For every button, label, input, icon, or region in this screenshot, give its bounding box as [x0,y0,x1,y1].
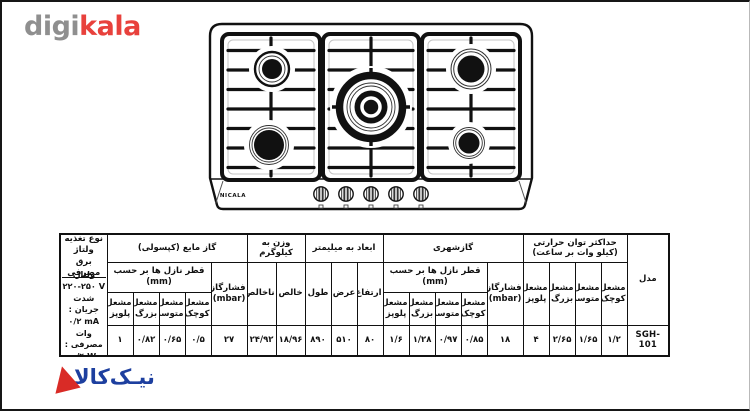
city-gas-burner-small-header: مشعلکوچک [461,292,487,325]
max-power-small-value: ۱/۲ [601,325,627,356]
lpg-nozzle-wok-value: ۱ [107,325,133,356]
weight-net-value: ۱۸/۹۶ [276,325,305,356]
city-gas-nozzle-header: قطر نازل ها بر حسب (mm) [383,262,487,292]
weight-gross-header: ناخالص [247,262,276,325]
burner-center-wok [330,66,412,148]
city-gas-nozzle-medium-value: ۰/۹۷ [435,325,461,356]
weight-group-header: وزن به کیلوگرم [247,234,305,262]
digikala-logo: digikala [24,13,141,40]
max-power-burner-large-header: مشعلبزرگ [549,262,575,325]
dimension-width-value: ۵۱۰ [331,325,357,356]
lpg-burner-large-header: مشعلبزرگ [133,292,159,325]
lpg-nozzle-large-value: ۰/۸۲ [133,325,159,356]
nikkala-logo: نیـک‌کالا [52,364,155,391]
max-power-medium-value: ۱/۶۵ [575,325,601,356]
electrical-values: ولتاژ: ۲۲۰-۲۵۰ V شدت جریان : ۰/۲ mA وات … [62,278,106,354]
lpg-burner-wok-header: مشعلپلوپز [107,292,133,325]
city-gas-nozzle-large-value: ۱/۲۸ [409,325,435,356]
max-power-burner-medium-header: مشعلمتوسط [575,262,601,325]
dimension-width-header: عرض [331,262,357,325]
city-gas-nozzle-wok-value: ۱/۶ [383,325,409,356]
spec-table-container: مدل حداکثر توان حرارتی (کیلو وات بر ساعت… [59,233,670,357]
burner-right-bottom [448,122,490,164]
stove-diagram: NICALA [202,17,536,213]
lpg-nozzle-medium-value: ۰/۶۵ [159,325,185,356]
lpg-pressure-header: فشارگاز(mbar) [211,262,247,325]
digikala-logo-digi: digi [24,11,79,42]
dimensions-group-header: ابعاد به میلیمتر [305,234,383,262]
lpg-nozzle-header: قطر نازل ها بر حسب (mm) [107,262,211,292]
dimension-height-header: ارتفاع [357,262,383,325]
lpg-burner-small-header: مشعلکوچک [185,292,211,325]
city-gas-pressure-value: ۱۸ [487,325,523,356]
spec-table: مدل حداکثر توان حرارتی (کیلو وات بر ساعت… [59,233,670,357]
lpg-burner-medium-header: مشعلمتوسط [159,292,185,325]
burner-right-top [446,44,496,94]
nikkala-logo-text: نیـک‌کالا [74,367,155,388]
dimension-length-header: طول [305,262,331,325]
lpg-nozzle-small-value: ۰/۵ [185,325,211,356]
model-header: مدل [627,234,669,325]
nikkala-triangle-icon [49,363,80,394]
weight-net-header: خالص [276,262,305,325]
city-gas-burner-medium-header: مشعلمتوسط [435,292,461,325]
burner-left-top [249,46,295,92]
dimension-length-value: ۸۹۰ [305,325,331,356]
max-power-burner-wok-header: مشعلپلوپز [523,262,549,325]
model-value: SGH-101 [627,325,669,356]
dimension-height-value: ۸۰ [357,325,383,356]
max-power-burner-small-header: مشعلکوچک [601,262,627,325]
city-gas-nozzle-small-value: ۰/۸۵ [461,325,487,356]
max-power-group-header: حداکثر توان حرارتی (کیلو وات بر ساعت) [523,234,627,262]
stove-brand-label: NICALA [220,193,246,199]
weight-gross-value: ۲۴/۹۲ [247,325,276,356]
max-power-large-value: ۲/۶۵ [549,325,575,356]
city-gas-burner-large-header: مشعلبزرگ [409,292,435,325]
lpg-pressure-value: ۲۷ [211,325,247,356]
electrical-column: نوع تغذیه ولتاژ برق مصرفی ولتاژ: ۲۲۰-۲۵۰… [60,234,107,356]
max-power-wok-value: ۴ [523,325,549,356]
city-gas-burner-wok-header: مشعلپلوپز [383,292,409,325]
burner-left-bottom [244,120,294,170]
product-spec-image: { "brand_header": { "digi": "digi", "kal… [0,0,750,411]
lpg-group-header: گاز مایع (کپسولی) [107,234,247,262]
city-gas-pressure-header: فشارگاز(mbar) [487,262,523,325]
city-gas-group-header: گازشهری [383,234,523,262]
digikala-logo-kala: kala [79,11,141,42]
